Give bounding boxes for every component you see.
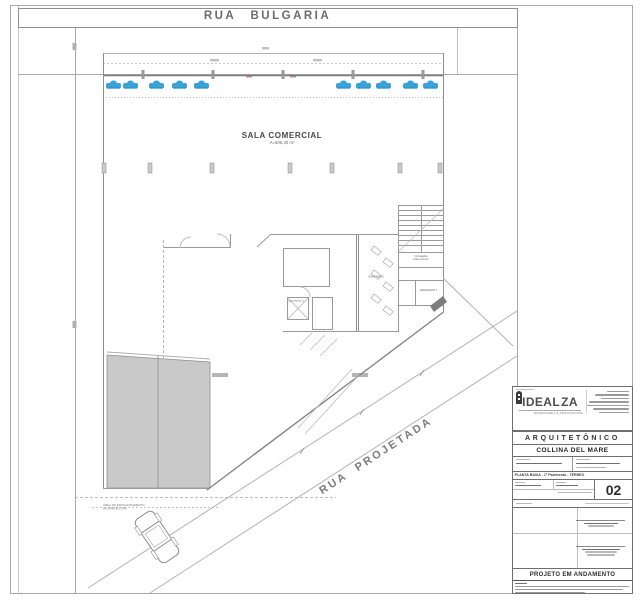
company-logo: IDEAL ZA ENGENHARIA E ARQUITETURA [515, 389, 585, 429]
signature-area [513, 508, 632, 569]
owner-fields-row [513, 457, 632, 472]
owner-field [513, 457, 572, 471]
car-icon [423, 81, 438, 89]
discipline-banner: ARQUITETÔNICO [513, 431, 632, 445]
elevator-2-label: ELEVADOR 2 [282, 300, 311, 303]
parking-row [106, 81, 438, 89]
contact-info-lines [586, 390, 630, 413]
tower-icon [515, 389, 523, 404]
sanitary-label: SANITÁRIOS [358, 276, 394, 279]
reference-row [513, 500, 632, 508]
interior-partitions [163, 234, 399, 332]
circulation-label: Circulação área comum [399, 255, 443, 261]
sanitary-fixtures [371, 246, 393, 315]
drawing-title: PLANTA BAIXA - 1º Pavimento - TÉRREO [513, 473, 623, 477]
room-name: SALA COMERCIAL [200, 131, 364, 140]
car-icon [123, 81, 138, 89]
pillars [102, 163, 442, 173]
drawing-title-row: PLANTA BAIXA - 1º Pavimento - TÉRREO [513, 472, 632, 480]
main-room-label: SALA COMERCIAL A=505,30 m² [200, 131, 364, 147]
street-name-top: RUA BULGARIA [18, 10, 517, 22]
notes-block [513, 581, 632, 595]
unit-field [513, 490, 594, 499]
car-icon [149, 81, 164, 89]
title-block: IDEAL ZA ENGENHARIA E ARQUITETURA ARQUIT… [512, 386, 633, 594]
signature-2 [573, 546, 628, 556]
logo-subtitle: ENGENHARIA E ARQUITETURA [534, 412, 566, 415]
room-area: A=505,30 m² [223, 141, 341, 145]
responsible-field [572, 457, 632, 471]
parking-note: ÁREA DE ESTACIONAMENTO DA PREFEITURA [103, 504, 163, 511]
elevator-1-label: ELEVADOR 1 [414, 289, 443, 292]
car-outline-icon [131, 508, 182, 566]
car-icon [376, 81, 391, 89]
title-block-logo-row: IDEAL ZA ENGENHARIA E ARQUITETURA [513, 387, 632, 431]
project-name: COLLINA DEL MARE [513, 445, 632, 457]
sheet-number-cell: 02 [595, 480, 632, 499]
signature-1 [573, 520, 628, 527]
logo-text-left: IDEAL [522, 396, 560, 408]
car-icon [106, 81, 121, 89]
car-icon [356, 81, 371, 89]
meta-grid: 02 [513, 480, 632, 500]
car-icon [172, 81, 187, 89]
date-field [513, 480, 553, 489]
car-icon [194, 81, 209, 89]
sheet-number: 02 [606, 483, 622, 497]
car-icon [336, 81, 351, 89]
drawing-sheet: RUA BULGARIA SALA COMERCIAL A=505,30 m² … [0, 0, 640, 600]
car-icon [403, 81, 418, 89]
status-banner: PROJETO EM ANDAMENTO [513, 569, 632, 581]
logo-text-right: ZA [561, 396, 578, 408]
scale-field [553, 480, 594, 489]
